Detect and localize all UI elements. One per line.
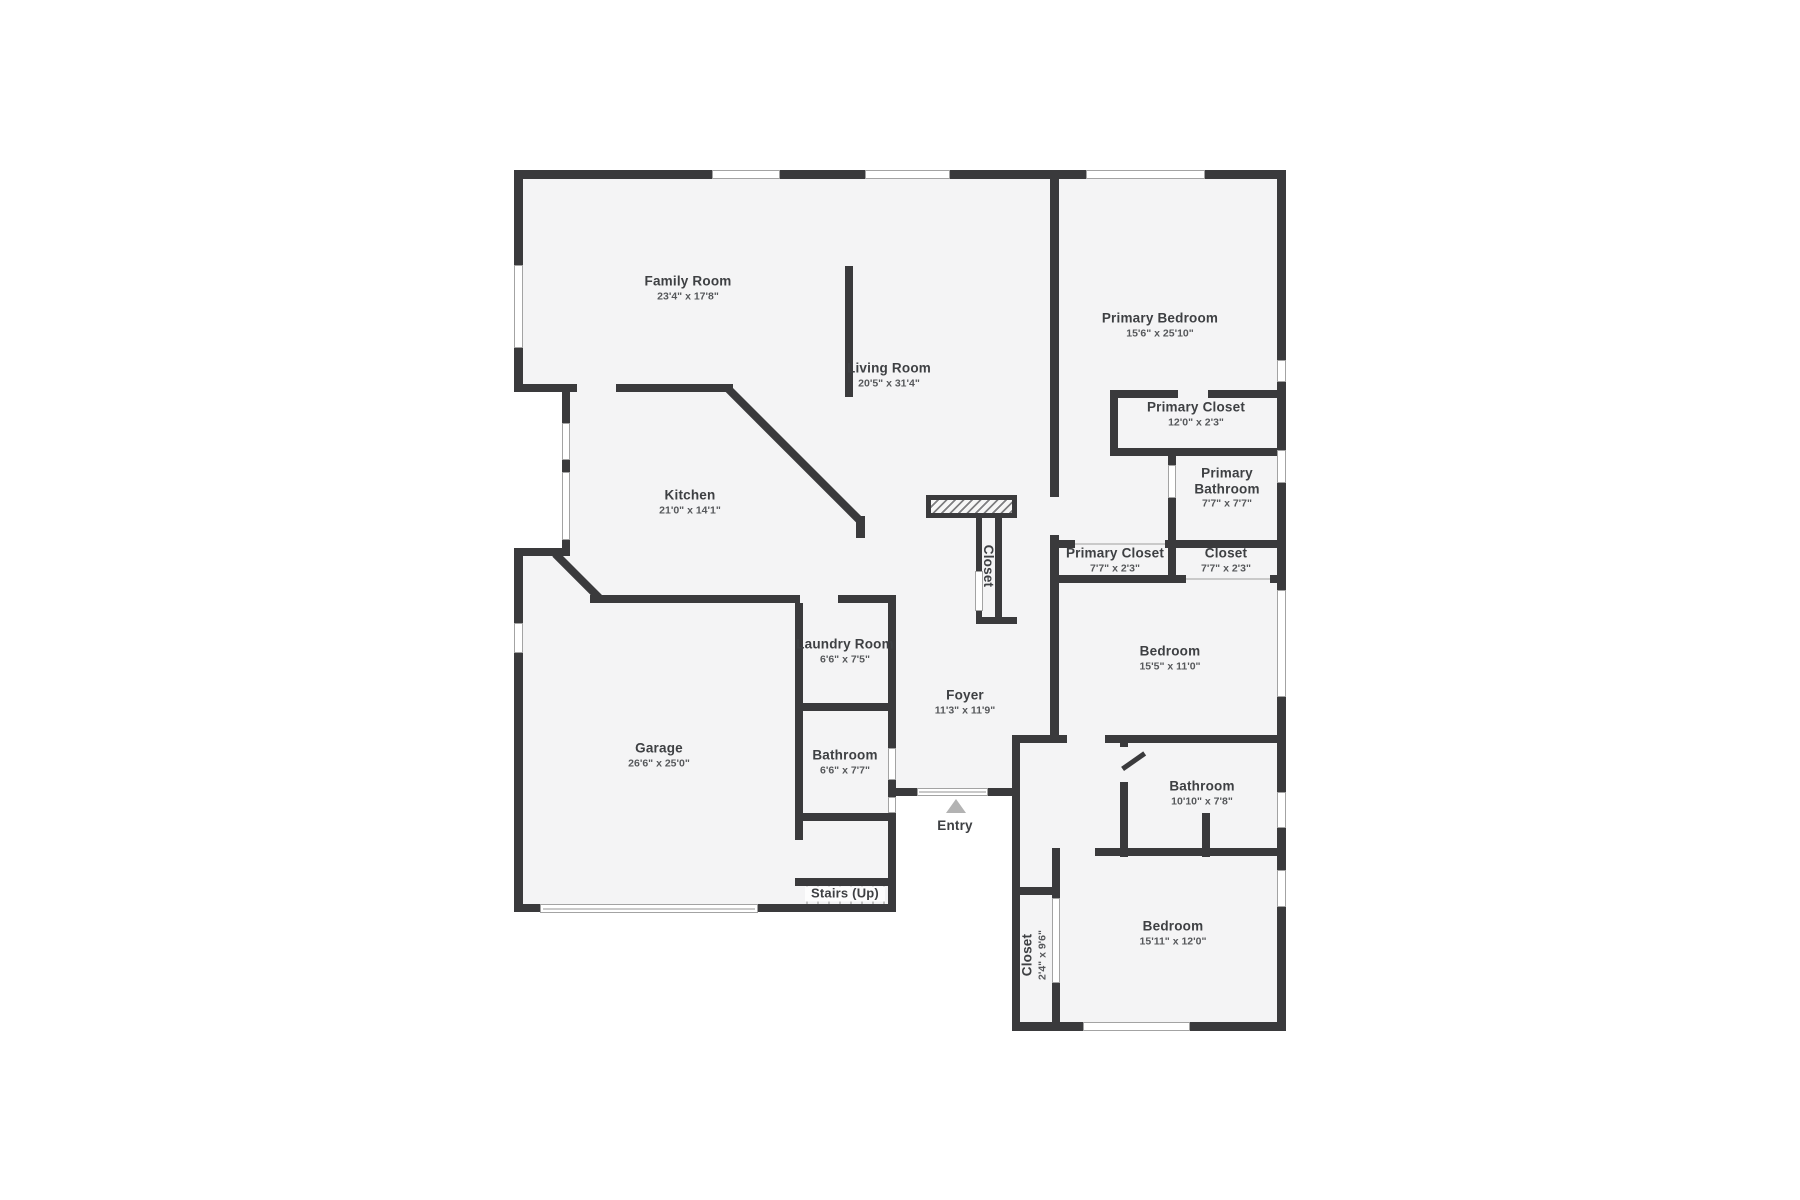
wall: [1270, 575, 1286, 583]
room-dimensions: 15'11" x 12'0": [1140, 936, 1207, 948]
room-dimensions: 23'4" x 17'8": [645, 291, 732, 303]
room-dimensions: 11'3" x 11'9": [935, 705, 996, 717]
wall: [1168, 448, 1176, 465]
room-dimensions: 6'6" x 7'7": [812, 765, 877, 777]
wall: [514, 548, 523, 623]
room-label-primary-bedroom: Primary Bedroom15'6" x 25'10": [1102, 310, 1218, 339]
floor-plan: Family Room23'4" x 17'8"Living Room20'5"…: [0, 0, 1800, 1200]
room-label-stairs: Stairs (Up): [805, 887, 885, 902]
wall: [795, 813, 896, 821]
room-label-primary-closet-top: Primary Closet12'0" x 2'3": [1147, 399, 1245, 428]
window: [1083, 1022, 1190, 1031]
room-name: Laundry Room: [796, 636, 894, 652]
room-name: Closet: [1019, 930, 1035, 980]
wall: [1120, 782, 1128, 857]
room-dimensions: 10'10" x 7'8": [1169, 796, 1234, 808]
window: [1277, 792, 1286, 828]
room-dimensions: 21'0" x 14'1": [659, 505, 721, 517]
opening-line: [543, 908, 755, 910]
window: [1277, 360, 1286, 382]
wall: [616, 384, 733, 392]
room-dimensions: 12'0" x 2'3": [1147, 417, 1245, 429]
room-name: Closet: [980, 545, 996, 587]
window: [1086, 170, 1205, 179]
wall: [780, 170, 865, 179]
window: [1052, 898, 1060, 983]
room-label-family-room: Family Room23'4" x 17'8": [645, 273, 732, 302]
wall: [562, 392, 570, 423]
wall: [1105, 735, 1286, 743]
floor-plan-page: Family Room23'4" x 17'8"Living Room20'5"…: [0, 0, 1800, 1200]
room-label-living-room: Living Room20'5" x 31'4": [847, 360, 931, 389]
wall: [995, 517, 1002, 619]
wall: [1012, 1022, 1083, 1031]
wall: [1110, 448, 1286, 456]
wall: [514, 384, 577, 392]
room-label-kitchen: Kitchen21'0" x 14'1": [659, 487, 721, 516]
entry-arrow-icon: [946, 799, 966, 813]
wall: [1277, 170, 1286, 360]
window: [888, 797, 896, 813]
wall: [795, 703, 896, 711]
room-label-bedroom-bottom: Bedroom15'11" x 12'0": [1140, 918, 1207, 947]
room-name: Family Room: [645, 273, 732, 289]
wall: [1277, 907, 1286, 1030]
wall: [1050, 170, 1059, 497]
room-label-primary-bathroom: PrimaryBathroom7'7" x 7'7": [1194, 466, 1259, 511]
room-name: Bathroom: [1169, 778, 1234, 794]
room-label-bathroom-right: Bathroom10'10" x 7'8": [1169, 778, 1234, 807]
room-name: Stairs (Up): [805, 887, 885, 902]
room-label-primary-closet-small: Primary Closet7'7" x 2'3": [1066, 545, 1164, 574]
room-dimensions: 15'5" x 11'0": [1139, 661, 1200, 673]
room-label-garage: Garage26'6" x 25'0": [628, 740, 690, 769]
wall: [590, 595, 800, 603]
room-name: Kitchen: [659, 487, 721, 503]
room-dimensions: 15'6" x 25'10": [1102, 328, 1218, 340]
window: [562, 472, 570, 540]
wall: [950, 170, 1086, 179]
room-dimensions: 6'6" x 7'5": [796, 654, 894, 666]
wall: [514, 170, 712, 179]
wall: [514, 904, 540, 912]
room-label-closet-center: Closet: [980, 545, 996, 587]
room-dimensions: 7'7" x 2'3": [1201, 563, 1251, 575]
room-label-foyer: Foyer11'3" x 11'9": [935, 687, 996, 716]
wall: [976, 617, 1017, 624]
window: [562, 423, 570, 460]
wall: [1110, 390, 1178, 398]
wall: [1190, 1022, 1286, 1031]
window: [1168, 465, 1176, 498]
exterior-area: [505, 392, 562, 548]
wall: [1277, 697, 1286, 792]
wall: [795, 904, 896, 912]
wall: [1208, 390, 1286, 398]
hatched-builtin: [926, 495, 1017, 518]
room-name: Primary Closet: [1066, 545, 1164, 561]
floor-area: [518, 552, 896, 908]
room-dimensions: 7'7" x 2'3": [1066, 563, 1164, 575]
opening-line: [919, 791, 986, 793]
room-name: Primary: [1194, 466, 1259, 482]
wall: [514, 170, 523, 265]
window: [514, 623, 523, 653]
room-dimensions: 26'6" x 25'0": [628, 758, 690, 770]
window: [1277, 590, 1286, 697]
room-label-closet-bottom: Closet2'4" x 9'6": [1019, 930, 1048, 980]
room-label-bathroom-hall: Bathroom6'6" x 7'7": [812, 747, 877, 776]
wall: [988, 788, 1015, 796]
wall: [1110, 390, 1118, 456]
room-dimensions: 2'4" x 9'6": [1037, 930, 1049, 980]
room-name: Entry: [937, 818, 973, 834]
wall: [1012, 735, 1020, 1030]
opening-line: [1186, 578, 1270, 580]
wall: [896, 788, 917, 796]
room-dimensions: 7'7" x 7'7": [1194, 499, 1259, 511]
room-name: Foyer: [935, 687, 996, 703]
room-name: Primary Bedroom: [1102, 310, 1218, 326]
wall: [758, 904, 795, 912]
room-name: Garage: [628, 740, 690, 756]
wall: [562, 460, 570, 472]
room-label-entry: Entry: [937, 818, 973, 834]
room-name: Living Room: [847, 360, 931, 376]
wall: [1205, 170, 1286, 179]
wall: [1120, 735, 1128, 747]
wall: [888, 711, 896, 748]
window: [712, 170, 780, 179]
window: [1277, 450, 1286, 483]
room-dimensions: 20'5" x 31'4": [847, 378, 931, 390]
window: [514, 265, 523, 348]
room-label-laundry-room: Laundry Room6'6" x 7'5": [796, 636, 894, 665]
wall: [1277, 483, 1286, 590]
room-name-line2: Bathroom: [1194, 481, 1259, 497]
room-label-bedroom-mid: Bedroom15'5" x 11'0": [1139, 643, 1200, 672]
wall: [1050, 535, 1059, 743]
room-name: Primary Closet: [1147, 399, 1245, 415]
room-name: Bathroom: [812, 747, 877, 763]
room-name: Closet: [1201, 545, 1251, 561]
wall: [1012, 887, 1060, 895]
window: [888, 748, 896, 780]
room-name: Bedroom: [1139, 643, 1200, 659]
window: [1277, 870, 1286, 907]
wall: [838, 595, 895, 603]
wall: [1095, 848, 1286, 856]
room-label-closet-small: Closet7'7" x 2'3": [1201, 545, 1251, 574]
wall: [1050, 575, 1186, 583]
room-name: Bedroom: [1140, 918, 1207, 934]
window: [865, 170, 950, 179]
wall: [514, 653, 523, 912]
